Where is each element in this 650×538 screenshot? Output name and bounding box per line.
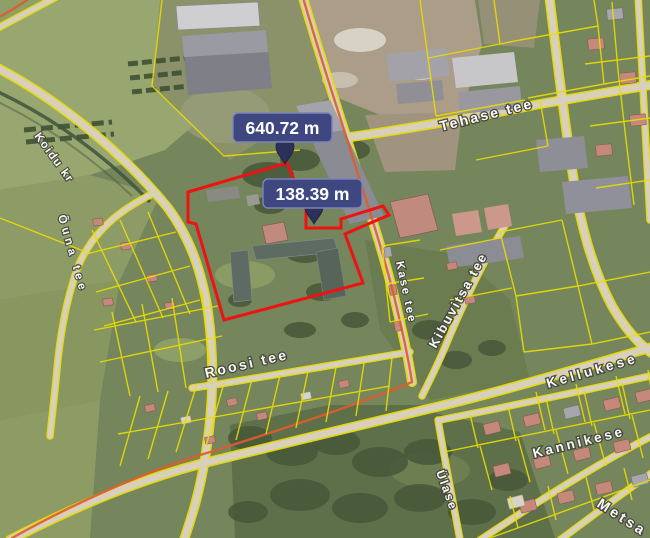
measurement-value: 138.39 m [276,184,350,204]
industrial-building [176,2,260,30]
measurement-badge-2: 138.39 m [263,179,362,208]
measurement-badge-1: 640.72 m [233,113,332,142]
measurement-value: 640.72 m [246,118,320,138]
map-viewport[interactable]: Koidu kr Õuna tee Tehase tee Kibuvitsa t… [0,0,650,538]
map-canvas[interactable]: Koidu kr Õuna tee Tehase tee Kibuvitsa t… [0,0,650,538]
